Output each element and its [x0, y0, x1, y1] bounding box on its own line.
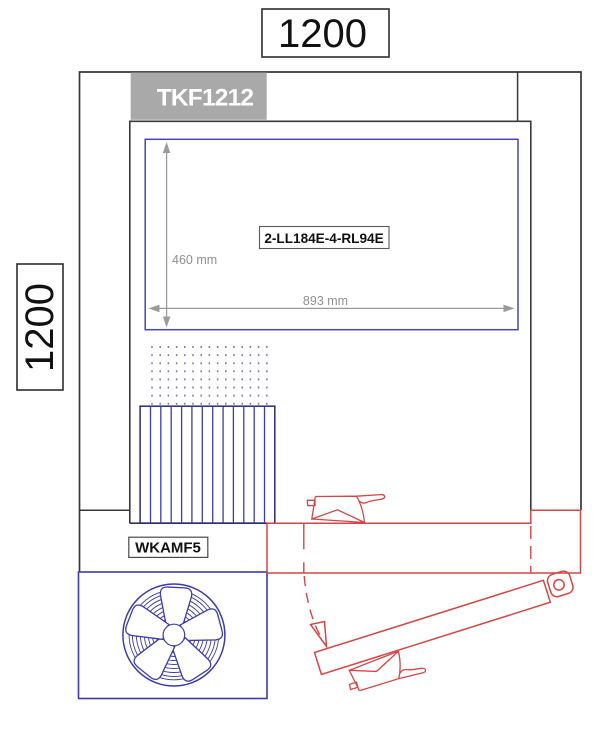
- svg-text:460 mm: 460 mm: [172, 253, 217, 267]
- svg-text:2-LL184E-4-RL94E: 2-LL184E-4-RL94E: [264, 231, 383, 246]
- svg-text:1200: 1200: [18, 283, 62, 372]
- svg-text:WKAMF5: WKAMF5: [135, 540, 201, 557]
- svg-text:1200: 1200: [278, 12, 367, 56]
- svg-text:893 mm: 893 mm: [303, 294, 348, 308]
- svg-text:TKF1212: TKF1212: [157, 85, 254, 112]
